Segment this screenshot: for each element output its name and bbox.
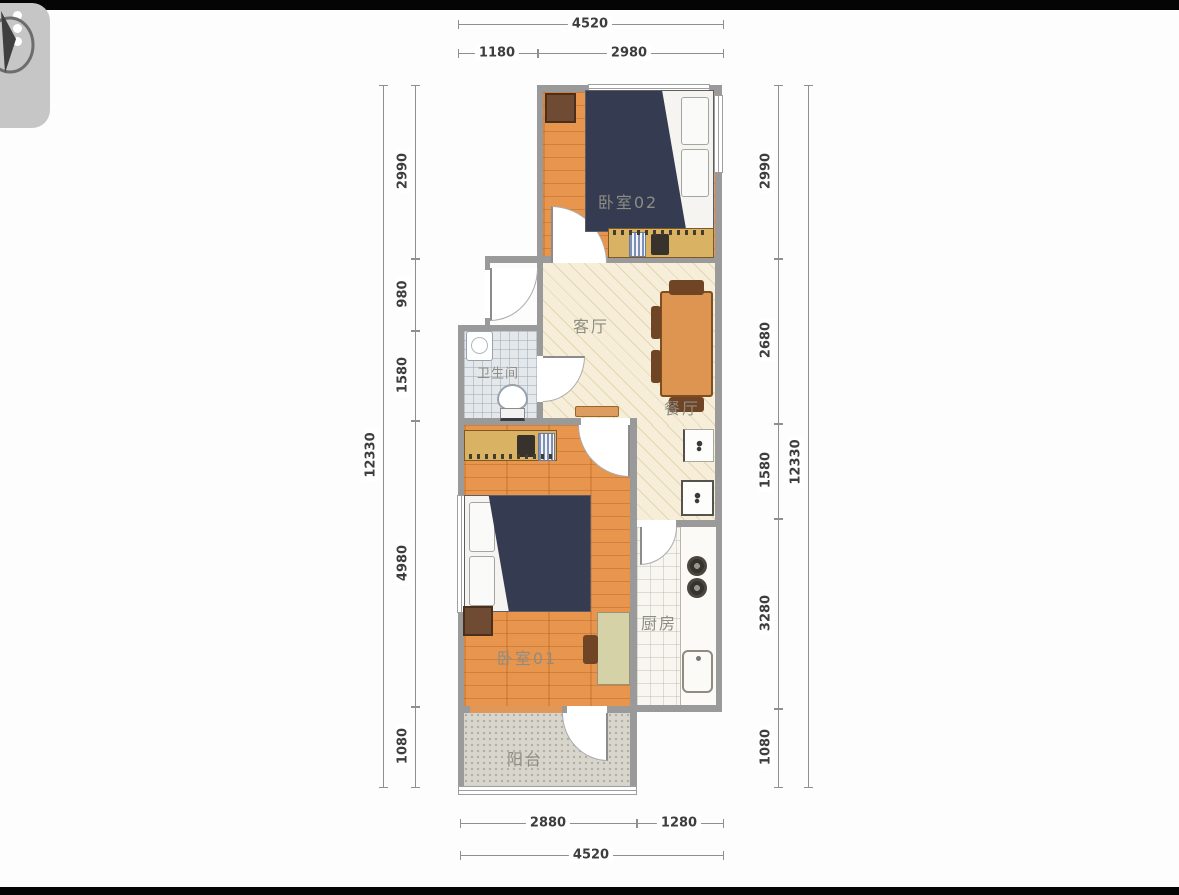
dimension-line <box>411 330 420 422</box>
dimension-right-seg-1: 2990 <box>759 149 774 193</box>
hanging-clothes-icon <box>538 433 555 461</box>
balcony-sill <box>470 706 562 713</box>
compass-icon <box>0 3 50 128</box>
dimension-top-total: 4520 <box>568 17 612 32</box>
dining-chair <box>669 280 704 295</box>
toilet-tank <box>500 408 525 421</box>
door-opening <box>581 418 630 425</box>
floorplan-image: 卧室02 客厅 餐厅 卫生间 卧室01 厨房 阳台 4520 1180 2980… <box>0 0 1179 895</box>
dimension-left-seg-4: 4980 <box>396 541 411 585</box>
hanging-bag-icon <box>517 435 535 457</box>
wall <box>715 85 722 712</box>
washbasin <box>466 331 493 361</box>
dimension-right-seg-5: 1080 <box>759 725 774 769</box>
wardrobe <box>608 228 714 258</box>
dimension-left-seg-5: 1080 <box>396 724 411 768</box>
wall <box>537 85 543 356</box>
dimension-line <box>774 708 783 788</box>
dimension-line <box>774 423 783 520</box>
desk-chair <box>583 635 598 664</box>
letterbox-bottom <box>0 887 1179 895</box>
basin-bowl <box>471 337 488 354</box>
dimension-right-seg-4: 3280 <box>759 591 774 635</box>
dimension-top-seg-1: 1180 <box>475 46 519 61</box>
hanging-clothes-icon <box>629 232 646 257</box>
toilet-bowl <box>497 384 528 411</box>
wall <box>630 418 637 713</box>
stove-burner-icon <box>687 556 707 576</box>
dimension-line <box>411 706 420 788</box>
window <box>714 95 723 173</box>
wall <box>458 713 464 787</box>
room-label-bedroom-01: 卧室01 <box>497 645 557 669</box>
dimension-top-seg-2: 2980 <box>607 46 651 61</box>
dimension-right-total: 12330 <box>789 435 804 488</box>
dimension-line <box>411 85 420 260</box>
dimension-left-seg-2: 980 <box>396 276 411 311</box>
nightstand <box>545 93 576 123</box>
wall <box>630 713 637 787</box>
dimension-line <box>774 85 783 260</box>
refrigerator <box>683 429 714 462</box>
dimension-line <box>774 258 783 425</box>
dimension-bottom-total: 4520 <box>569 848 613 863</box>
dimension-line <box>411 420 420 708</box>
app-watermark-logo <box>0 3 50 128</box>
desk <box>597 612 630 685</box>
dimension-right-seg-3: 1580 <box>759 448 774 492</box>
wall <box>637 705 722 712</box>
dimension-left-seg-3: 1580 <box>396 353 411 397</box>
wardrobe <box>464 430 557 461</box>
pillow <box>681 97 709 145</box>
door-opening <box>640 520 676 527</box>
room-label-balcony: 阳台 <box>507 746 543 770</box>
dimension-left-seg-1: 2990 <box>396 149 411 193</box>
dining-table <box>660 291 713 397</box>
balcony-railing-window <box>458 786 637 795</box>
toilet <box>497 384 528 422</box>
letterbox-top <box>0 0 1179 10</box>
room-label-bedroom-02: 卧室02 <box>598 189 658 213</box>
nightstand <box>463 606 493 636</box>
dimension-bottom-seg-1: 2880 <box>526 816 570 831</box>
room-label-kitchen: 厨房 <box>641 610 677 634</box>
dining-chair <box>651 350 661 383</box>
room-label-dining-area: 餐厅 <box>664 395 700 419</box>
door-opening <box>567 706 607 713</box>
pillow <box>469 556 495 606</box>
bedroom-01-door-leaf <box>575 406 619 417</box>
room-label-bathroom: 卫生间 <box>477 363 519 382</box>
appliance-icon <box>693 492 702 504</box>
double-bed <box>464 495 591 612</box>
hanging-bag-icon <box>651 234 669 255</box>
kitchen-sink <box>682 650 713 693</box>
wall <box>458 325 464 425</box>
dimension-right-seg-2: 2680 <box>759 318 774 362</box>
room-label-living-room: 客厅 <box>573 313 609 337</box>
dimension-line <box>411 258 420 332</box>
wall <box>537 402 543 425</box>
pillow <box>681 149 709 197</box>
dimension-line <box>774 518 783 710</box>
dimension-bottom-seg-2: 1280 <box>657 816 701 831</box>
dimension-line <box>804 85 813 788</box>
washing-machine <box>681 480 714 516</box>
stove-burner-icon <box>687 578 707 598</box>
dimension-left-total: 12330 <box>364 428 379 481</box>
appliance-icon <box>695 440 704 452</box>
dining-chair <box>651 306 661 339</box>
dimension-line <box>379 85 388 788</box>
